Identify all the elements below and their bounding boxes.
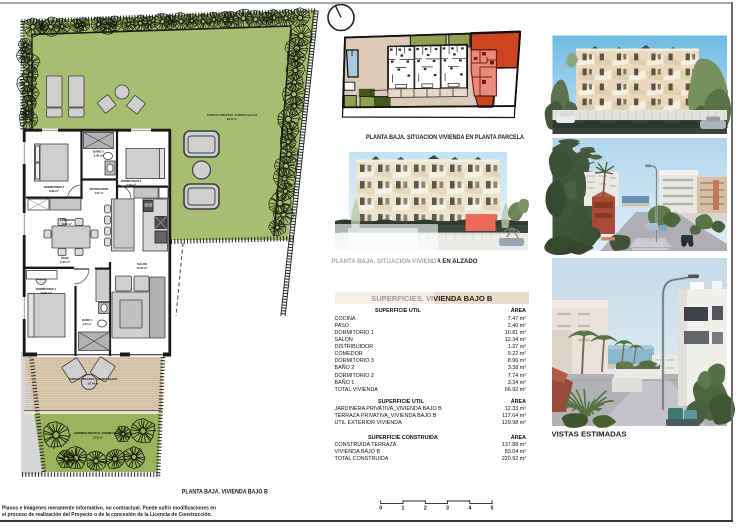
svg-text:el proceso de realización del: el proceso de realización del Proyecto o… — [2, 512, 212, 518]
svg-text:5: 5 — [491, 506, 494, 512]
svg-text:JARDINERA PRIVATIVA_VIVIENDA B: JARDINERA PRIVATIVA_VIVIENDA BAJO B — [74, 432, 123, 435]
svg-text:PLANTA BAJA. SITUACION VIVIEND: PLANTA BAJA. SITUACION VIVIENDA EN PLANT… — [366, 134, 524, 141]
svg-text:12.33 m²: 12.33 m² — [93, 436, 103, 440]
svg-text:TERRAZA PRIVATIVA_VIVIENDA BAJ: TERRAZA PRIVATIVA_VIVIENDA BAJO B — [69, 378, 118, 381]
svg-text:3.34 m²: 3.34 m² — [83, 322, 92, 326]
svg-text:TERRAZA PRIVATIVA_VIVIENDA BAJ: TERRAZA PRIVATIVA_VIVIENDA BAJA B — [207, 113, 257, 117]
svg-text:2: 2 — [424, 506, 427, 512]
svg-text:Planos e Imágenes meramente in: Planos e Imágenes meramente informativo,… — [2, 505, 217, 511]
svg-text:DISTRIBUIDOR: DISTRIBUIDOR — [90, 187, 109, 191]
svg-text:0: 0 — [379, 506, 382, 512]
svg-text:8.96 m²: 8.96 m² — [49, 189, 59, 193]
svg-text:2.40 m²: 2.40 m² — [60, 260, 70, 264]
svg-text:VISTAS ESTIMADAS: VISTAS ESTIMADAS — [552, 430, 627, 439]
svg-text:3.38 m²: 3.38 m² — [94, 154, 104, 158]
svg-text:99.14 m²: 99.14 m² — [227, 117, 238, 121]
svg-text:3: 3 — [446, 506, 449, 512]
svg-text:PLANTA BAJA. VIVIENDA BAJO B: PLANTA BAJA. VIVIENDA BAJO B — [182, 489, 268, 496]
svg-text:10.81 m²: 10.81 m² — [40, 291, 51, 295]
svg-text:117.64 m²: 117.64 m² — [87, 382, 98, 386]
svg-text:7.74 m²: 7.74 m² — [126, 183, 136, 187]
svg-text:1.27 m²: 1.27 m² — [95, 191, 104, 195]
svg-text:1: 1 — [402, 506, 405, 512]
svg-text:9.22 m²: 9.22 m² — [62, 222, 72, 226]
svg-text:4: 4 — [468, 506, 471, 512]
svg-text:12.34 m²: 12.34 m² — [136, 266, 147, 270]
